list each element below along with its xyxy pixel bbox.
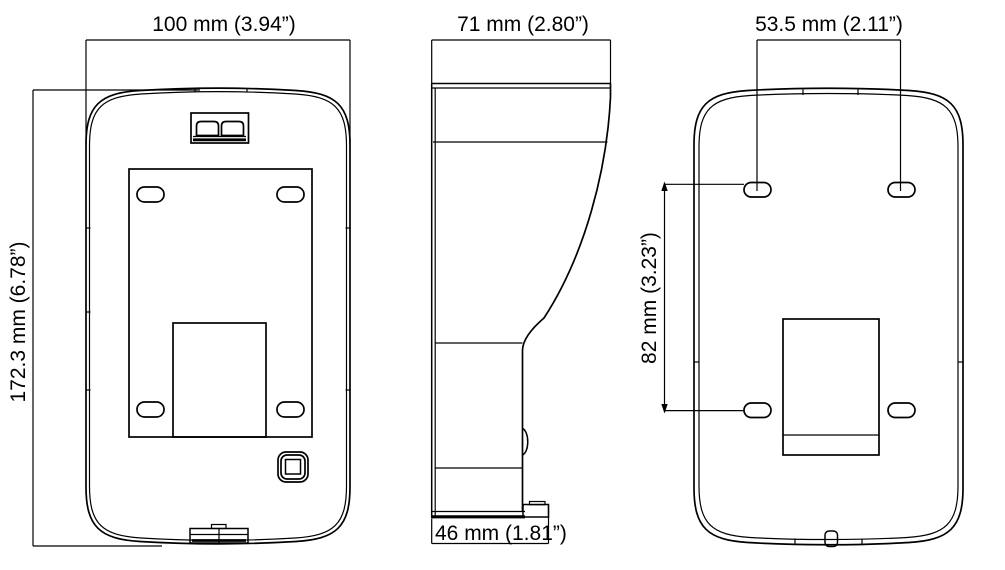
front-clip-bracket <box>191 113 249 143</box>
back-cable-entry <box>783 319 879 455</box>
front-mounting-plate <box>129 169 312 437</box>
side-sloped-profile <box>523 84 611 512</box>
back-hole-spacing-width-dimension: 53.5 mm (2.11”) <box>755 13 903 191</box>
back-seam-ticks <box>694 90 963 545</box>
side-width-dimension: 71 mm (2.80”) <box>432 13 611 84</box>
mounting-hole <box>744 403 771 418</box>
side-bottom-band <box>432 512 525 517</box>
mounting-slot <box>277 187 304 202</box>
dimension-arrow-down <box>661 404 667 414</box>
front-height-dimension: 172.3 mm (6.78”) <box>7 90 200 546</box>
mounting-slot <box>137 187 164 202</box>
back-mounting-holes <box>744 183 915 418</box>
front-view: 100 mm (3.94”) 172.3 mm (6.78”) <box>7 13 350 546</box>
side-width-label: 71 mm (2.80”) <box>457 13 589 36</box>
side-bottom-latch <box>523 502 549 518</box>
back-hole-spacing-height-dimension: 82 mm (3.23”) <box>638 182 744 414</box>
front-cable-opening <box>173 323 266 437</box>
drawing-canvas: 100 mm (3.94”) 172.3 mm (6.78”) <box>0 0 1005 570</box>
dimension-drawing: 100 mm (3.94”) 172.3 mm (6.78”) <box>0 0 1005 570</box>
front-bottom-latch <box>190 525 248 544</box>
side-depth-label: 46 mm (1.81”) <box>435 522 567 545</box>
front-height-label: 172.3 mm (6.78”) <box>7 241 30 402</box>
front-body-outline <box>86 88 350 544</box>
front-screw-hole <box>278 452 308 482</box>
mounting-slot <box>277 402 304 417</box>
side-view: 71 mm (2.80”) 46 mm (1.81”) <box>432 13 611 545</box>
front-width-label: 100 mm (3.94”) <box>152 13 296 36</box>
dimension-arrow-up <box>661 182 667 192</box>
mounting-hole <box>888 403 915 418</box>
back-hole-spacing-width-label: 53.5 mm (2.11”) <box>755 13 903 36</box>
front-mounting-slots <box>137 187 304 417</box>
side-depth-dimension: 46 mm (1.81”) <box>432 505 567 546</box>
mounting-hole <box>888 183 915 198</box>
back-body-inner-line <box>699 93 958 539</box>
back-hole-spacing-height-label: 82 mm (3.23”) <box>638 232 661 364</box>
back-body-outline <box>694 88 963 545</box>
back-view: 53.5 mm (2.11”) 82 mm (3.23”) <box>638 13 963 547</box>
mounting-slot <box>137 402 164 417</box>
